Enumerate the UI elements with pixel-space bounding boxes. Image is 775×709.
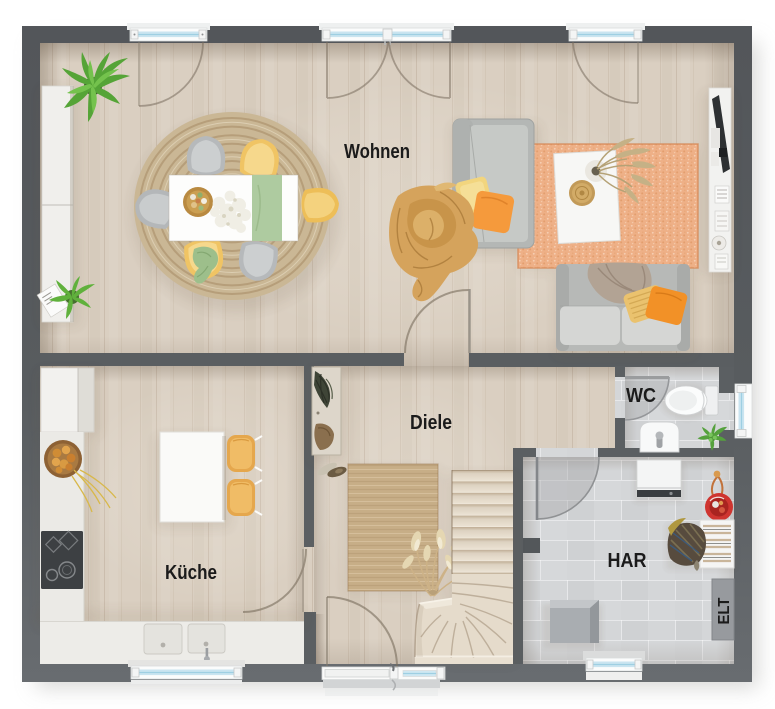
svg-text:Wohnen: Wohnen [344,140,410,163]
svg-text:Küche: Küche [165,561,217,584]
svg-text:HAR: HAR [608,549,647,572]
svg-text:ELT: ELT [716,597,733,625]
svg-text:WC: WC [626,384,656,407]
svg-text:Diele: Diele [410,411,452,434]
